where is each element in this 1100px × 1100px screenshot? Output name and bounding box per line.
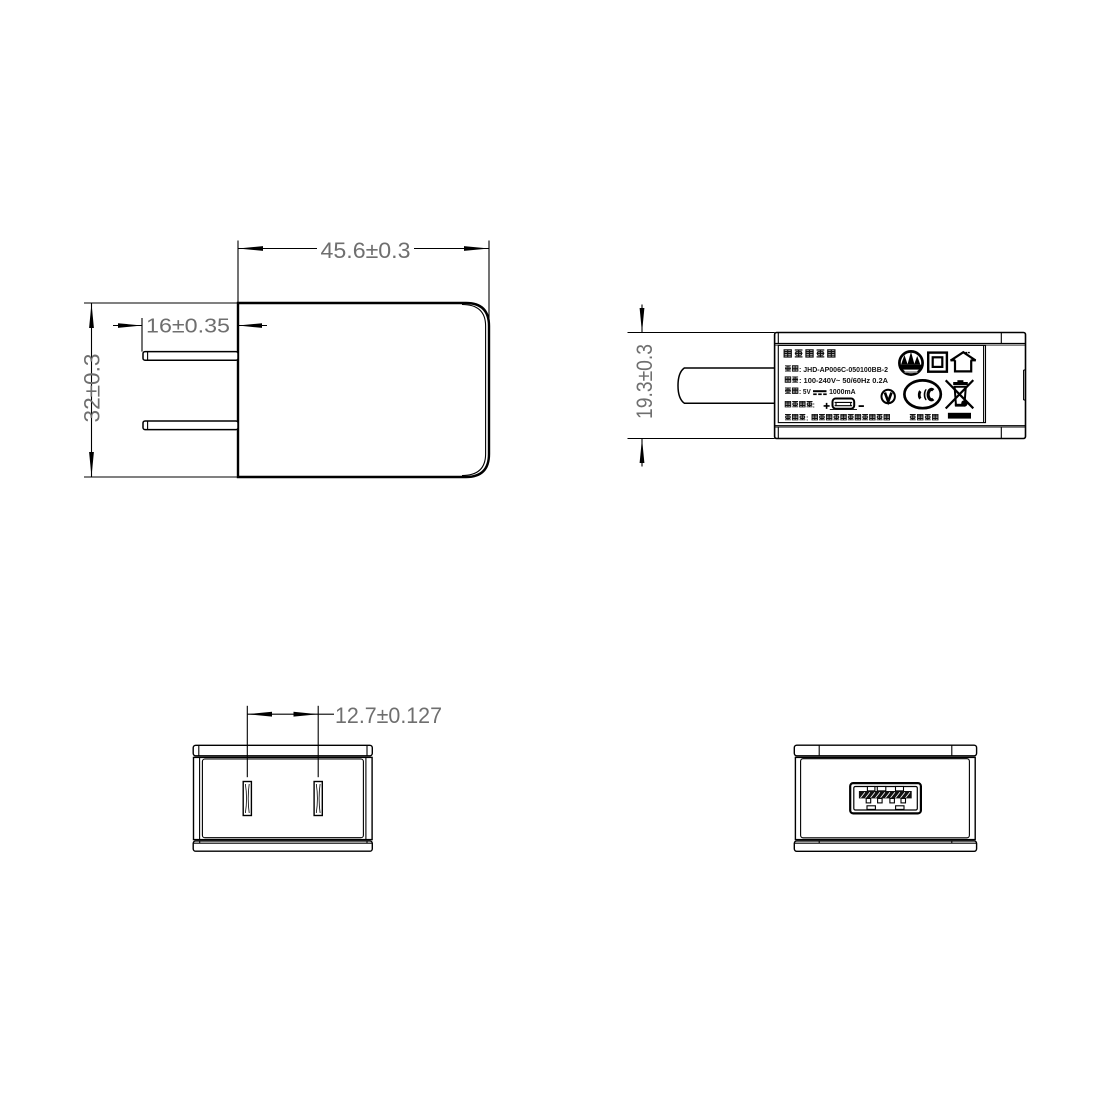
svg-text:: JHD-AP006C-050100BB-2: : JHD-AP006C-050100BB-2 [799,365,888,374]
svg-text:1000mA: 1000mA [829,387,856,396]
svg-text::: : [813,401,815,410]
svg-text:: 100-240V~ 50/60Hz 0.2A: : 100-240V~ 50/60Hz 0.2A [799,376,889,385]
svg-text:45.6±0.3: 45.6±0.3 [321,238,411,263]
svg-text:: 5V: : 5V [799,387,811,396]
svg-text::: : [806,414,808,423]
svg-text:16±0.35: 16±0.35 [146,315,230,338]
svg-text:12.7±0.127: 12.7±0.127 [335,703,442,728]
svg-text:19.3±0.3: 19.3±0.3 [632,344,657,419]
svg-text:32±0.3: 32±0.3 [80,354,105,423]
